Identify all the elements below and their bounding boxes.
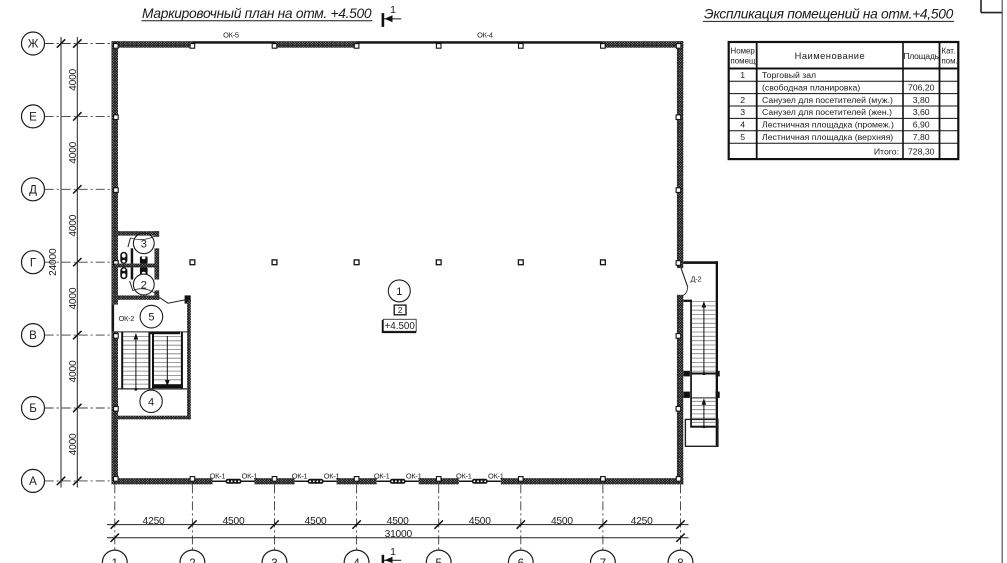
svg-text:Торговый зал: Торговый зал	[762, 70, 816, 80]
svg-text:Лестничная площадка (верхняя): Лестничная площадка (верхняя)	[762, 132, 893, 142]
svg-text:Д: Д	[29, 184, 37, 196]
svg-text:ОК-1: ОК-1	[456, 471, 472, 480]
svg-text:ОК-5: ОК-5	[223, 30, 239, 39]
svg-text:1: 1	[740, 70, 745, 80]
svg-text:3: 3	[740, 107, 745, 117]
svg-text:(свободная планировка): (свободная планировка)	[762, 82, 860, 92]
svg-text:помещ.: помещ.	[731, 57, 758, 66]
svg-text:ОК-2: ОК-2	[119, 314, 135, 323]
svg-text:Маркировочный план на отм. +4.: Маркировочный план на отм. +4.500	[142, 6, 372, 21]
svg-text:3,60: 3,60	[913, 107, 930, 117]
svg-text:ОК-1: ОК-1	[324, 471, 340, 480]
svg-text:4: 4	[740, 120, 745, 130]
svg-text:4000: 4000	[68, 141, 79, 163]
svg-text:+4.500: +4.500	[385, 321, 416, 332]
svg-text:Г: Г	[30, 257, 37, 269]
svg-text:2: 2	[740, 95, 745, 105]
svg-text:Экспликация помещений на отм.+: Экспликация помещений на отм.+4,500	[704, 7, 954, 22]
svg-text:4250: 4250	[631, 516, 653, 527]
svg-text:ОК-1: ОК-1	[242, 471, 258, 480]
svg-text:Санузел для посетителей (муж.): Санузел для посетителей (муж.)	[762, 95, 893, 105]
svg-text:Номер: Номер	[731, 47, 756, 56]
svg-text:4500: 4500	[551, 516, 573, 527]
svg-text:2: 2	[398, 305, 403, 315]
svg-text:Е: Е	[29, 112, 37, 124]
svg-text:6: 6	[518, 558, 524, 563]
svg-text:В: В	[29, 330, 37, 342]
svg-text:2: 2	[189, 558, 195, 563]
svg-text:6,90: 6,90	[913, 120, 930, 130]
svg-text:пом.: пом.	[942, 57, 958, 66]
svg-text:4000: 4000	[68, 433, 79, 455]
svg-text:7,80: 7,80	[913, 132, 930, 142]
svg-text:3: 3	[271, 558, 277, 563]
svg-text:4: 4	[353, 558, 360, 563]
svg-text:7: 7	[600, 558, 606, 563]
svg-text:Д-2: Д-2	[691, 274, 702, 283]
svg-text:1: 1	[396, 286, 402, 298]
svg-text:1: 1	[390, 546, 396, 558]
svg-text:5: 5	[435, 558, 441, 563]
svg-text:2: 2	[141, 280, 147, 292]
svg-text:4500: 4500	[469, 516, 491, 527]
svg-text:4250: 4250	[143, 516, 165, 527]
svg-text:1: 1	[390, 4, 396, 16]
svg-text:ОК-1: ОК-1	[488, 471, 504, 480]
svg-text:4000: 4000	[68, 360, 79, 382]
svg-text:4000: 4000	[68, 214, 79, 236]
svg-text:Лестничная площадка (промеж.): Лестничная площадка (промеж.)	[762, 120, 894, 130]
svg-text:4: 4	[148, 396, 154, 408]
svg-text:А: А	[29, 476, 37, 488]
svg-text:4000: 4000	[68, 287, 79, 309]
svg-text:ОК-1: ОК-1	[406, 471, 422, 480]
svg-text:5: 5	[740, 132, 745, 142]
svg-text:ОК-4: ОК-4	[477, 30, 493, 39]
svg-text:4500: 4500	[223, 516, 245, 527]
svg-text:3: 3	[141, 238, 147, 250]
svg-text:706,20: 706,20	[908, 82, 935, 92]
svg-text:1: 1	[112, 558, 118, 563]
svg-text:5: 5	[148, 312, 154, 324]
svg-text:Площадь: Площадь	[903, 51, 939, 61]
svg-text:4000: 4000	[68, 68, 79, 90]
svg-text:Санузел для посетителей (жен.): Санузел для посетителей (жен.)	[762, 107, 892, 117]
svg-text:ОК-1: ОК-1	[292, 471, 308, 480]
svg-text:Б: Б	[29, 403, 37, 415]
svg-text:Ж: Ж	[28, 39, 39, 51]
svg-text:728,30: 728,30	[908, 147, 935, 157]
svg-text:Наименование: Наименование	[795, 51, 865, 61]
svg-text:Итого:: Итого:	[874, 147, 899, 157]
svg-text:24000: 24000	[48, 248, 59, 276]
svg-text:4500: 4500	[387, 516, 409, 527]
svg-text:ОК-1: ОК-1	[210, 471, 226, 480]
svg-text:4500: 4500	[305, 516, 327, 527]
svg-text:3,80: 3,80	[913, 95, 930, 105]
svg-text:8: 8	[677, 558, 683, 563]
svg-text:31000: 31000	[385, 529, 413, 540]
svg-text:ОК-1: ОК-1	[374, 471, 390, 480]
svg-text:Кат.: Кат.	[942, 47, 956, 56]
